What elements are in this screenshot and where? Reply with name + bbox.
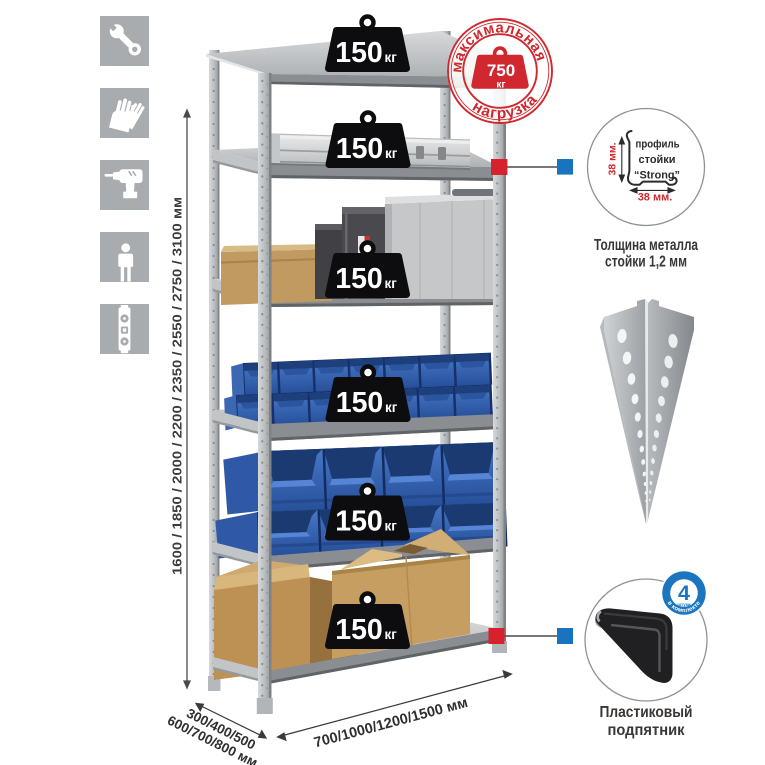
svg-text:38 мм.: 38 мм.: [607, 142, 619, 175]
svg-text:кг: кг: [496, 80, 505, 91]
svg-text:стойки 1,2 мм: стойки 1,2 мм: [605, 254, 687, 271]
svg-text:штуки: штуки: [677, 602, 691, 607]
svg-text:Толщина металла: Толщина металла: [594, 237, 698, 254]
svg-text:1600 / 1850 / 2000 / 2200 / 23: 1600 / 1850 / 2000 / 2200 / 2350 / 2550 …: [170, 197, 185, 575]
svg-text:“Strong”: “Strong”: [634, 170, 680, 182]
svg-text:38 мм.: 38 мм.: [638, 192, 673, 204]
svg-text:стойки: стойки: [639, 154, 676, 166]
svg-text:750: 750: [487, 61, 515, 80]
svg-text:профиль: профиль: [636, 139, 680, 151]
svg-text:Пластиковый: Пластиковый: [600, 704, 693, 721]
svg-text:подпятник: подпятник: [608, 722, 686, 739]
